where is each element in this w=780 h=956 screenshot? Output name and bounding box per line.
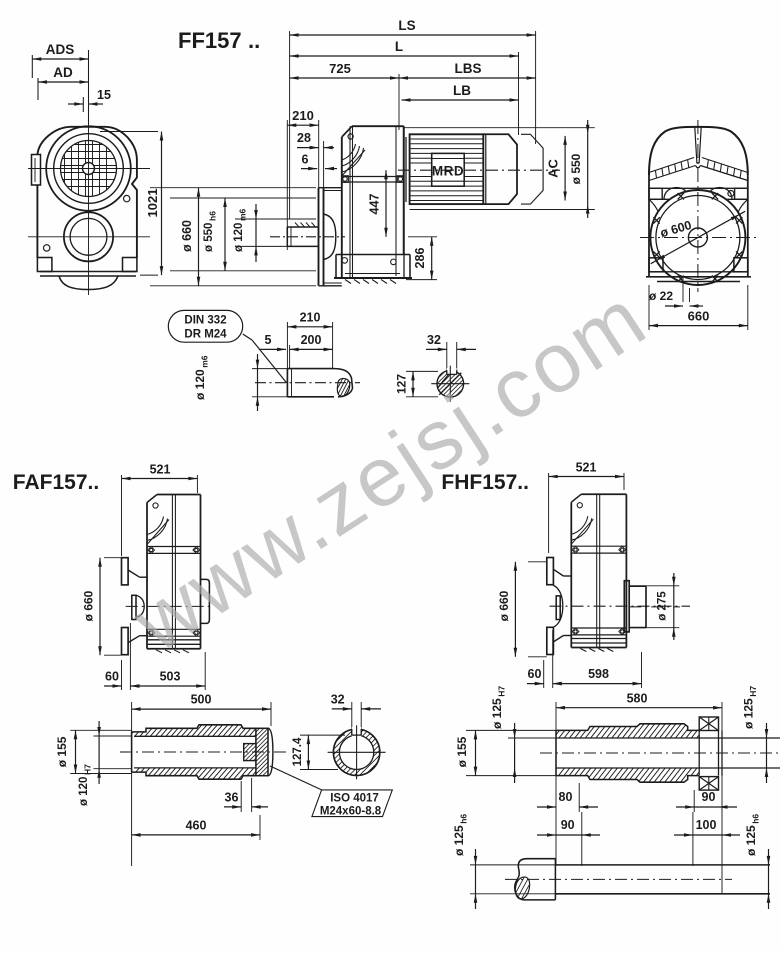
svg-text:447: 447	[368, 194, 382, 215]
svg-text:127.4: 127.4	[292, 737, 304, 766]
svg-text:6: 6	[302, 153, 309, 167]
svg-text:h6: h6	[208, 211, 218, 221]
svg-text:ø 22: ø 22	[649, 289, 673, 303]
svg-text:500: 500	[191, 693, 212, 707]
svg-text:580: 580	[627, 691, 648, 705]
svg-text:200: 200	[301, 333, 322, 347]
svg-text:LS: LS	[398, 18, 415, 33]
svg-text:28: 28	[297, 131, 311, 145]
svg-text:m6: m6	[200, 355, 210, 368]
svg-text:ISO 4017: ISO 4017	[330, 793, 379, 805]
svg-text:ø 660: ø 660	[180, 220, 194, 252]
svg-text:L: L	[395, 39, 403, 54]
svg-text:..: ..	[248, 28, 260, 53]
svg-text:725: 725	[329, 61, 351, 76]
svg-text:AD: AD	[53, 65, 73, 80]
svg-text:660: 660	[688, 309, 710, 324]
svg-text:DR M24: DR M24	[184, 329, 227, 341]
svg-text:521: 521	[150, 463, 171, 477]
svg-text:M24x60-8.8: M24x60-8.8	[320, 806, 382, 818]
svg-text:521: 521	[576, 461, 597, 475]
svg-text:h6: h6	[751, 814, 761, 824]
svg-text:H7: H7	[748, 686, 758, 697]
svg-text:ø 550: ø 550	[203, 223, 215, 252]
svg-text:ø 125: ø 125	[490, 698, 504, 729]
svg-text:ø 120: ø 120	[233, 223, 245, 252]
svg-text:36: 36	[225, 791, 239, 805]
svg-text:32: 32	[331, 693, 345, 707]
svg-text:ø 125: ø 125	[742, 698, 756, 729]
svg-text:ø 660: ø 660	[82, 590, 96, 621]
svg-text:ø 120: ø 120	[193, 369, 207, 400]
svg-text:ø 120: ø 120	[78, 777, 90, 806]
svg-text:DIN 332: DIN 332	[184, 315, 226, 327]
svg-text:80: 80	[559, 790, 573, 804]
svg-text:1021: 1021	[145, 189, 160, 218]
svg-text:FAF157..: FAF157..	[13, 471, 99, 494]
svg-text:LB: LB	[453, 83, 471, 98]
svg-text:90: 90	[561, 818, 575, 832]
svg-text:ø 275: ø 275	[657, 591, 669, 621]
svg-text:H7: H7	[83, 764, 93, 775]
svg-text:MRD: MRD	[432, 164, 464, 179]
svg-text:ø 125: ø 125	[744, 825, 758, 856]
svg-text:60: 60	[528, 667, 542, 681]
svg-text:ø 660: ø 660	[497, 590, 511, 621]
svg-text:100: 100	[696, 818, 717, 832]
svg-text:210: 210	[300, 311, 321, 325]
svg-text:15: 15	[97, 88, 111, 102]
svg-text:286: 286	[413, 248, 427, 269]
svg-text:m6: m6	[238, 208, 248, 221]
svg-text:90: 90	[702, 790, 716, 804]
svg-text:ø 125: ø 125	[452, 825, 466, 856]
svg-text:210: 210	[292, 108, 314, 123]
svg-text:598: 598	[588, 667, 609, 681]
svg-text:FF157: FF157	[178, 28, 242, 53]
svg-text:AC: AC	[546, 159, 561, 178]
svg-text:H7: H7	[497, 686, 507, 697]
svg-text:60: 60	[105, 670, 119, 684]
svg-text:ø 155: ø 155	[55, 736, 69, 767]
svg-text:32: 32	[427, 333, 441, 347]
svg-text:460: 460	[186, 819, 207, 833]
svg-text:h6: h6	[459, 814, 469, 824]
svg-text:503: 503	[160, 670, 181, 684]
svg-text:ø 550: ø 550	[569, 153, 583, 184]
svg-text:ø 155: ø 155	[455, 736, 469, 767]
svg-text:5: 5	[265, 333, 272, 347]
svg-text:LBS: LBS	[455, 61, 482, 76]
svg-text:ADS: ADS	[46, 42, 75, 57]
svg-text:127: 127	[395, 374, 409, 394]
